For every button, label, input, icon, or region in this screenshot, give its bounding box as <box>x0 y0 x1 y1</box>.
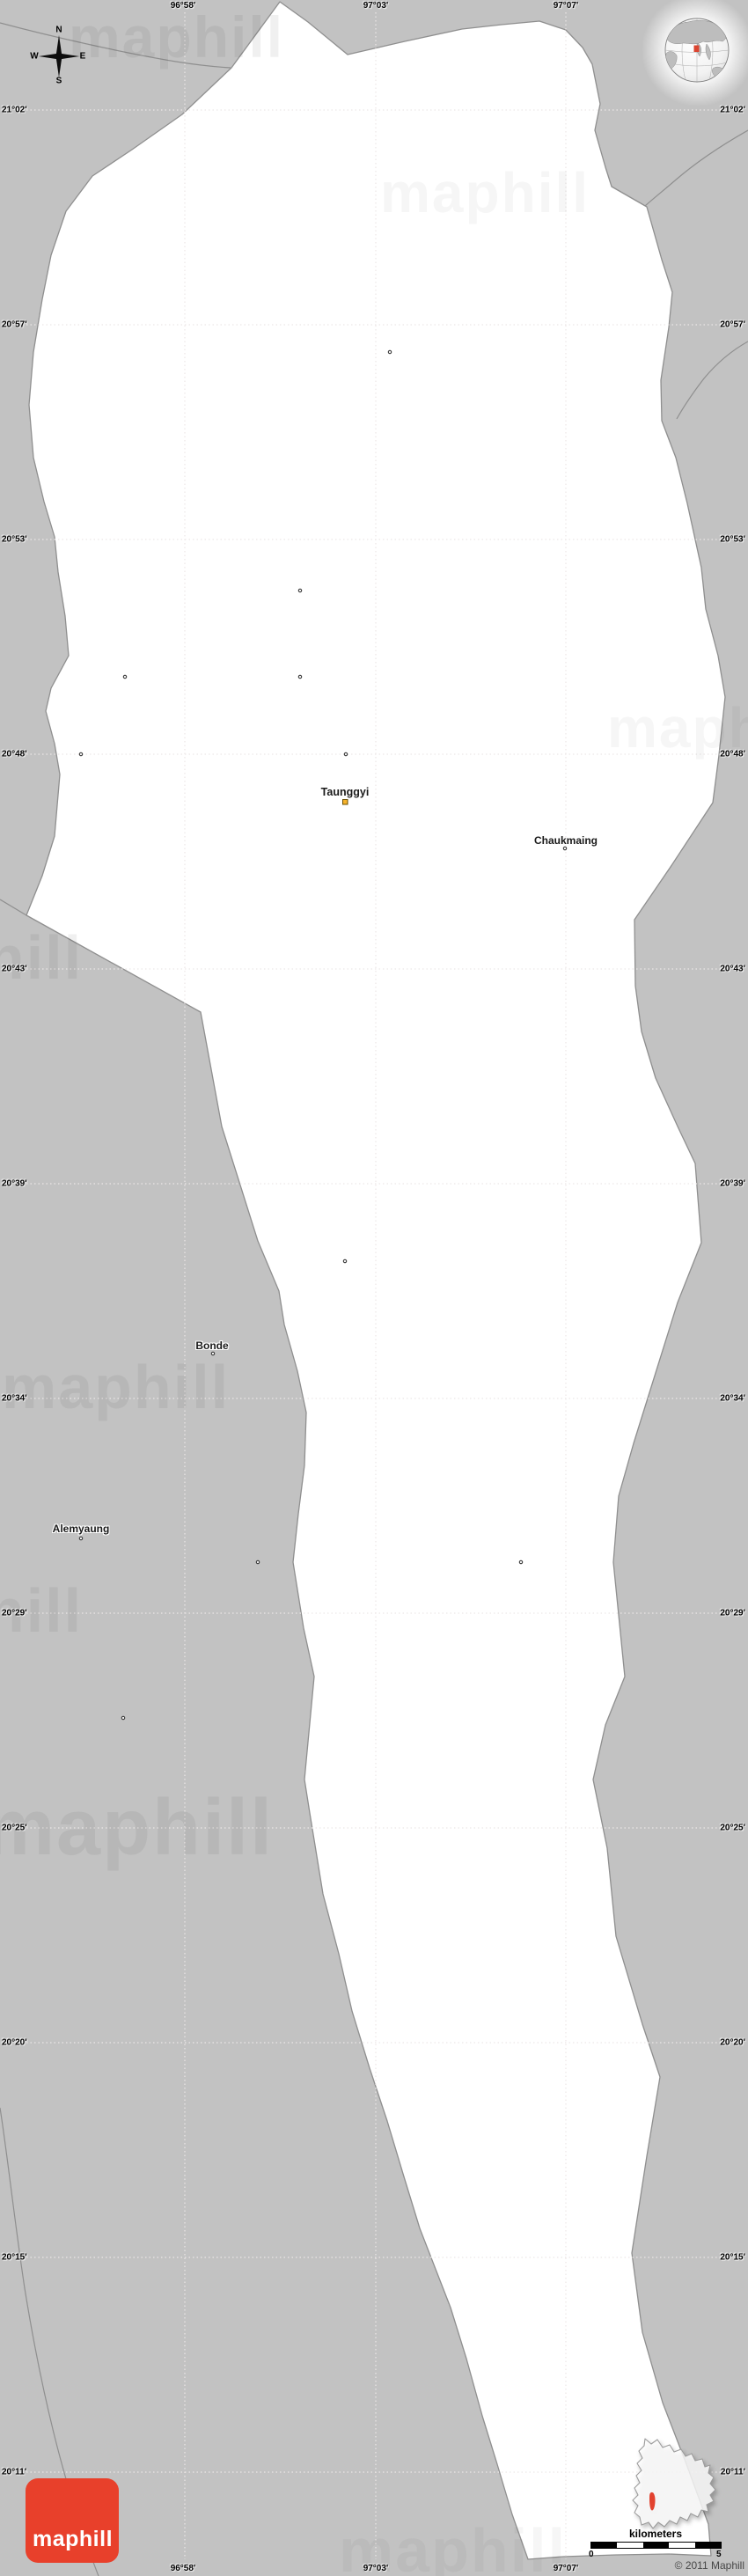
lon-label-top-0: 96°58' <box>171 1 196 11</box>
lat-label-right-1: 20°57' <box>720 320 745 330</box>
lat-label-right-10: 20°15' <box>720 2253 745 2263</box>
village-dot <box>388 350 391 353</box>
village-dot <box>79 752 82 755</box>
scale-unit-label: kilometers <box>578 2528 733 2540</box>
maphill-logo: maphill <box>26 2478 119 2563</box>
map-canvas: maphill maphill maphill maphill maphill … <box>0 0 748 2576</box>
place-label-bonde: Bonde <box>195 1339 228 1352</box>
village-dot <box>343 1259 346 1262</box>
lat-label-left-11: 20°11' <box>2 2468 26 2477</box>
scale-start-value: 0 <box>589 2550 594 2559</box>
scale-segment <box>669 2543 694 2548</box>
lon-label-bottom-2: 97°07' <box>554 2564 579 2573</box>
scale-segment <box>617 2543 642 2548</box>
compass-north-label: N <box>55 26 62 35</box>
scale-segment <box>591 2543 617 2548</box>
village-dot <box>519 1560 522 1563</box>
town-marker <box>343 800 348 805</box>
lat-label-left-1: 20°57' <box>2 320 27 330</box>
scale-end-value: 5 <box>716 2550 722 2559</box>
lat-label-right-7: 20°29' <box>720 1609 745 1618</box>
lat-label-left-2: 20°53' <box>2 535 27 545</box>
village-dot <box>298 675 301 678</box>
lat-label-left-3: 20°48' <box>2 750 27 760</box>
place-label-chaukmaing: Chaukmaing <box>534 834 598 847</box>
lat-label-right-8: 20°25' <box>720 1824 745 1833</box>
lat-label-left-6: 20°34' <box>2 1394 27 1404</box>
scale-segment <box>695 2543 721 2548</box>
village-dot <box>256 1560 259 1563</box>
village-dot <box>344 752 347 755</box>
lat-label-left-10: 20°15' <box>2 2253 27 2263</box>
scale-bar <box>590 2542 722 2549</box>
compass-south-label: S <box>56 77 62 86</box>
lat-label-right-11: 20°11' <box>721 2468 745 2477</box>
village-dot <box>298 589 301 591</box>
map-graphics <box>0 0 748 2576</box>
lon-label-bottom-0: 96°58' <box>171 2564 196 2573</box>
lat-label-left-4: 20°43' <box>2 965 27 974</box>
village-dot <box>121 1716 124 1719</box>
village-dot <box>563 847 566 849</box>
place-label-alemyaung: Alemyaung <box>53 1523 110 1535</box>
lat-label-left-9: 20°20' <box>2 2038 27 2048</box>
compass-west-label: W <box>30 52 38 62</box>
village-dot <box>123 675 126 678</box>
lon-label-top-2: 97°07' <box>554 1 579 11</box>
lat-label-left-0: 21°02' <box>2 106 27 115</box>
scale-segment <box>643 2543 669 2548</box>
lon-label-top-1: 97°03' <box>363 1 389 11</box>
lat-label-left-5: 20°39' <box>2 1179 27 1189</box>
lat-label-right-5: 20°39' <box>720 1179 745 1189</box>
lat-label-right-3: 20°48' <box>720 750 745 760</box>
lat-label-right-0: 21°02' <box>720 106 745 115</box>
lat-label-left-7: 20°29' <box>2 1609 27 1618</box>
place-label-taunggyi: Taunggyi <box>321 786 370 798</box>
lat-label-right-9: 20°20' <box>720 2038 745 2048</box>
compass-east-label: E <box>80 52 86 62</box>
maphill-logo-text: maphill <box>33 2527 113 2552</box>
lat-label-right-6: 20°34' <box>720 1394 745 1404</box>
globe-location-marker <box>694 46 700 53</box>
globe-locator-icon <box>665 18 729 82</box>
village-dot <box>211 1352 214 1354</box>
lat-label-right-4: 20°43' <box>720 965 745 974</box>
village-dot <box>79 1537 82 1539</box>
lat-label-left-8: 20°25' <box>2 1824 27 1833</box>
lon-label-bottom-1: 97°03' <box>363 2564 389 2573</box>
lat-label-right-2: 20°53' <box>720 535 745 545</box>
copyright-notice: © 2011 Maphill <box>675 2559 744 2572</box>
